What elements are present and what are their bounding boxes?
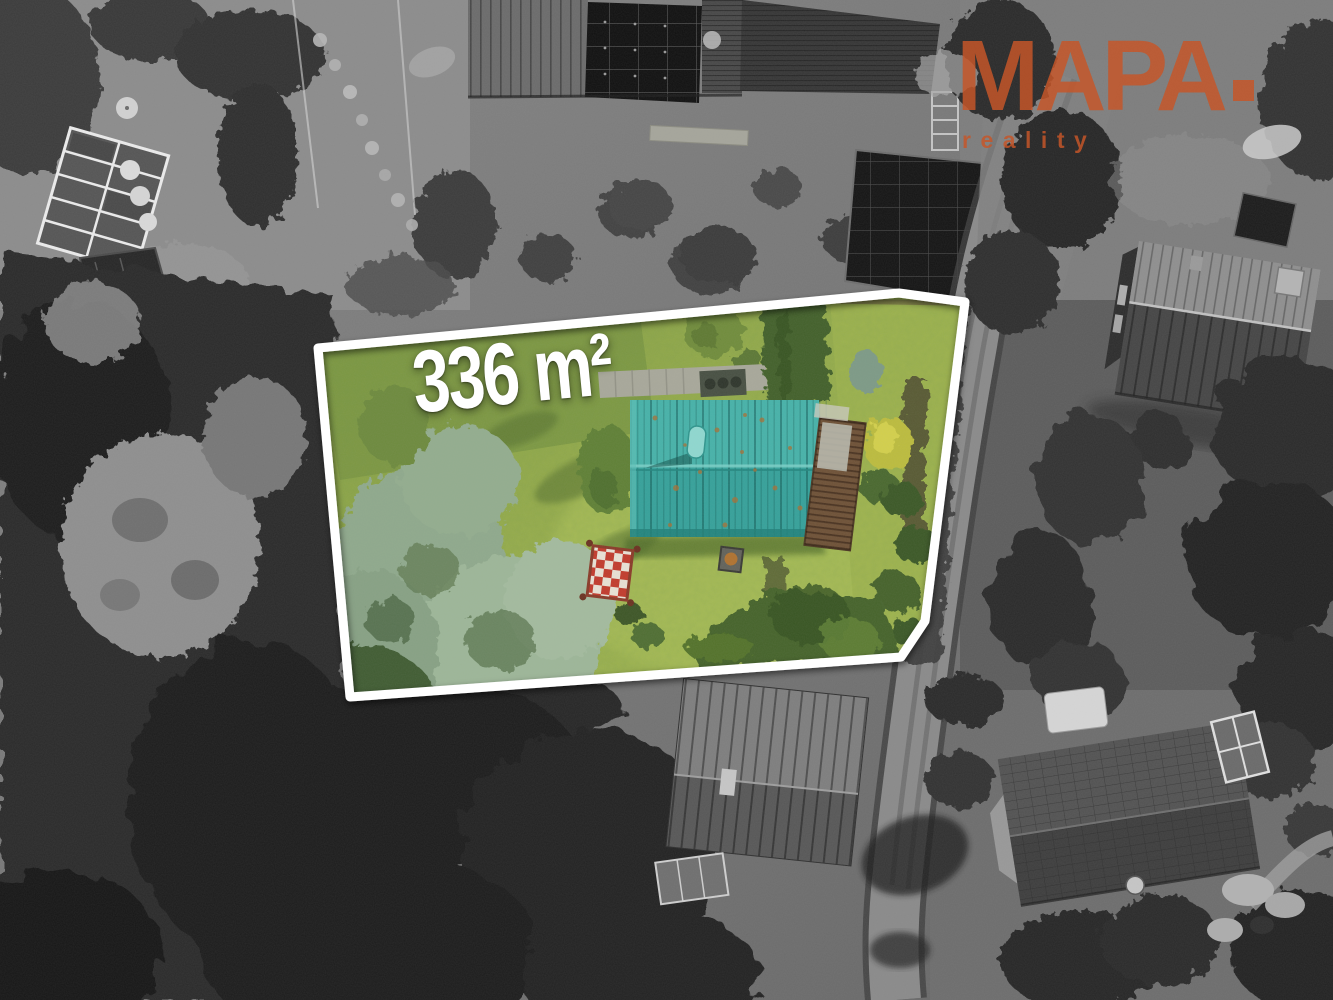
brand-logo-dot-icon [1233, 80, 1254, 101]
brand-logo-row: MAPA [956, 30, 1254, 122]
brand-logo-text: MAPA [956, 30, 1223, 122]
aerial-photo: 336 m² MAPA reality [0, 0, 1333, 1000]
property-area-label: 336 m² [408, 313, 615, 434]
brand-logo: MAPA reality [956, 30, 1254, 154]
